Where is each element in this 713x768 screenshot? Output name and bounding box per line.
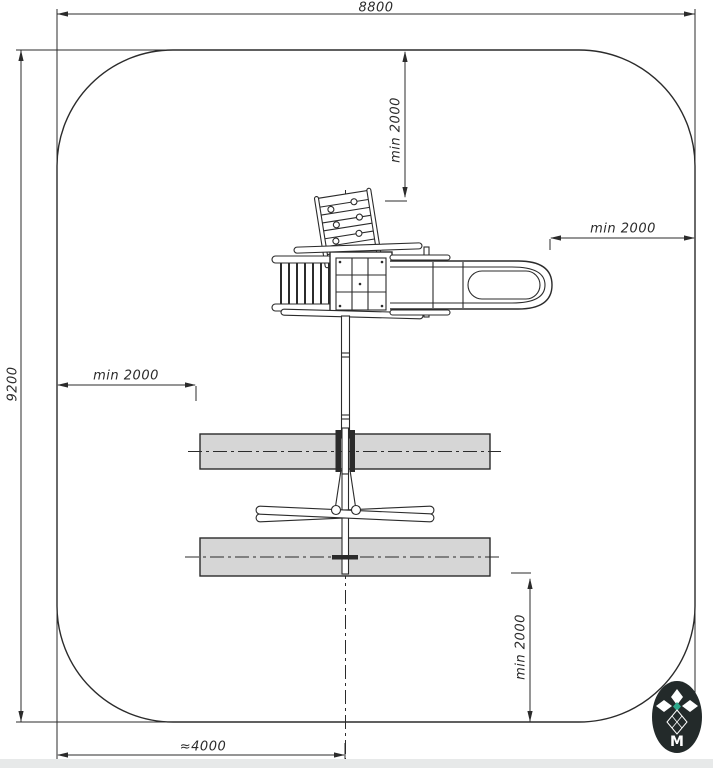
plan-drawing: M (0, 0, 713, 768)
dim-label-clearance-left: min 2000 (93, 369, 159, 384)
site-boundary (57, 50, 695, 722)
dimension-lines (18, 11, 695, 759)
swing-beam-pole (332, 316, 358, 574)
brand-logo: M (652, 681, 702, 753)
dim-label-clearance-top: min 2000 (389, 97, 404, 163)
dim-label-top-width: 8800 (358, 1, 393, 16)
dim-clearance-right (550, 235, 695, 250)
playground-structure (256, 188, 552, 574)
pole-foot-crossbar (332, 555, 358, 560)
dim-label-left-height: 9200 (6, 366, 21, 401)
bottom-band (0, 759, 713, 768)
drawing-sheet: M 8800 9200 min 2000 min 2000 min 2000 m… (0, 0, 713, 768)
dim-label-clearance-bottom-right: min 2000 (514, 614, 529, 680)
dim-label-bottom-width: ≈4000 (180, 740, 226, 755)
dim-clearance-left (57, 382, 196, 401)
swing-hanger-left (336, 430, 342, 472)
rounded-boundary (57, 50, 695, 722)
slide (390, 255, 552, 315)
platform (330, 252, 392, 316)
logo-monogram-m: M (670, 734, 684, 750)
swing-hanger-right (350, 430, 356, 472)
dim-label-clearance-right: min 2000 (590, 222, 656, 237)
